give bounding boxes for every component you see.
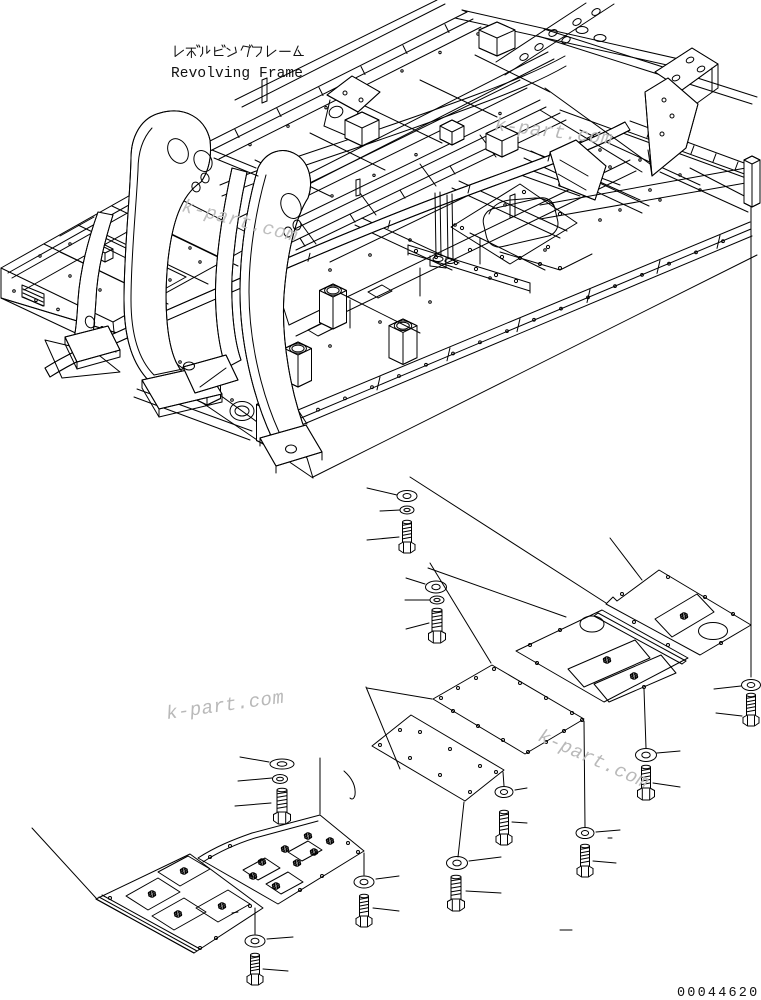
svg-text:k-part.com: k-part.com [535, 725, 653, 794]
svg-text:00044620: 00044620 [677, 986, 759, 1000]
svg-text:Revolving Frame: Revolving Frame [171, 66, 303, 82]
svg-text:k-part.com: k-part.com [165, 687, 286, 725]
